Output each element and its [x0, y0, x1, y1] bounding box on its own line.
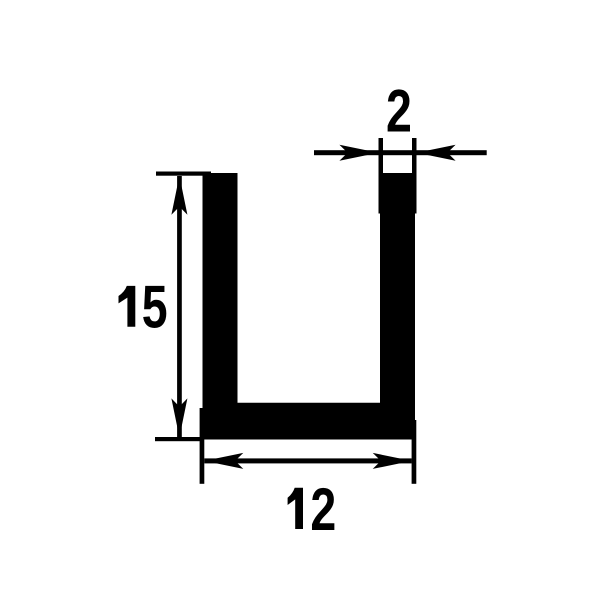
svg-text:2: 2	[310, 476, 336, 543]
svg-text:5: 5	[142, 274, 168, 341]
svg-text:2: 2	[386, 78, 412, 145]
